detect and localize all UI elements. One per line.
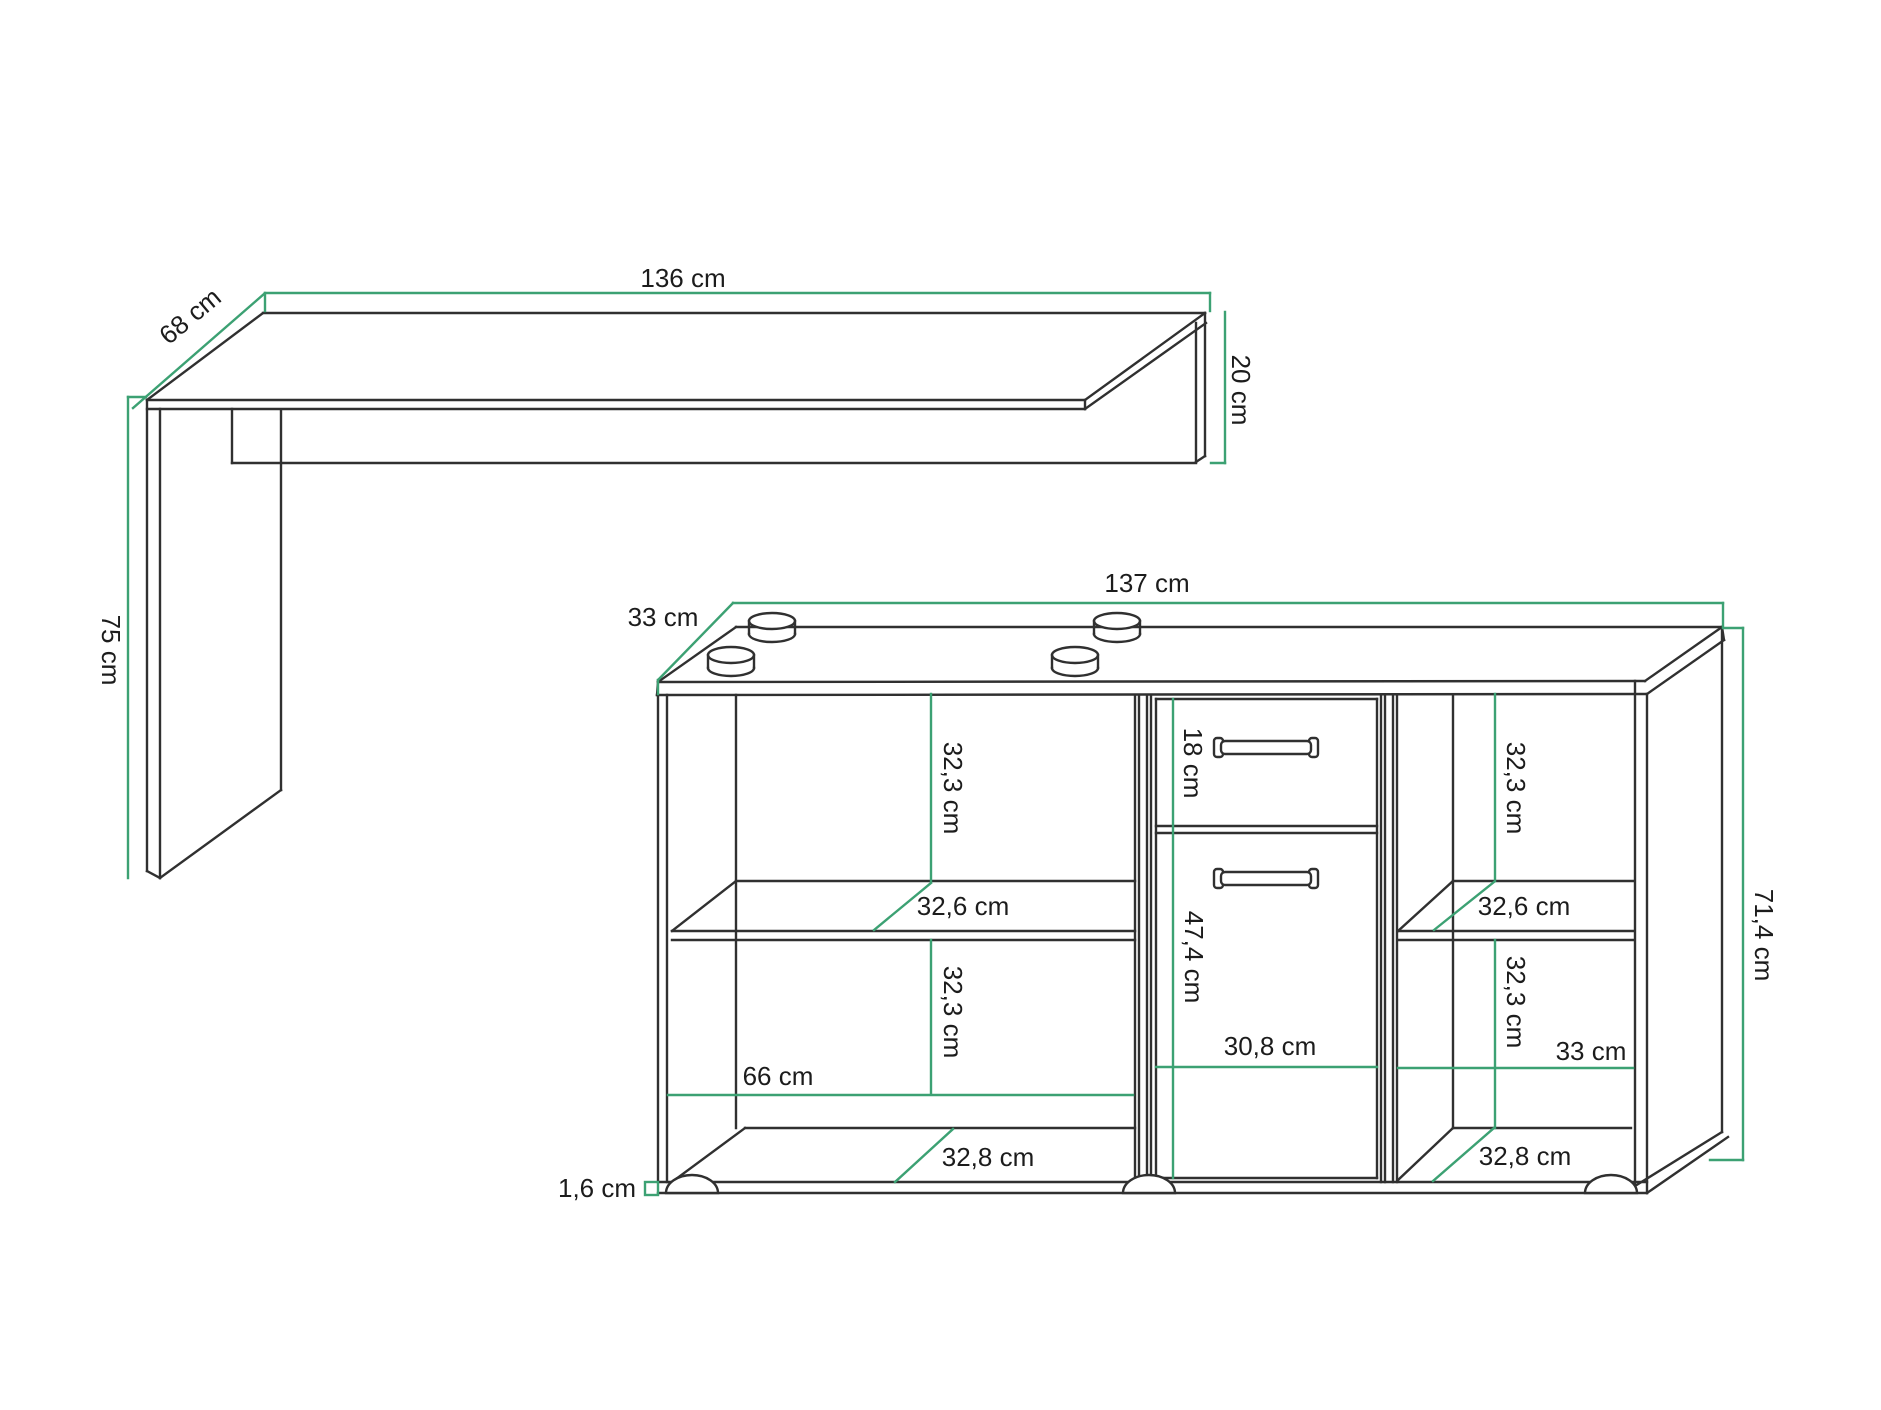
foot-cylinder-front-left: [708, 647, 754, 676]
foot-cylinder-front-right: [1052, 647, 1098, 676]
bottom-thickness-marker: [645, 1182, 658, 1195]
desk-top-right-edge-thickness: [1085, 323, 1206, 409]
cabinet-top-front-edge: [658, 681, 1645, 682]
desk-depth-label: 68 cm: [153, 282, 227, 350]
desk-width-label: 136 cm: [640, 263, 725, 293]
diagram-canvas: 136 cm 68 cm 75 cm 20 cm: [0, 0, 1881, 1410]
desk-panel-height-label: 20 cm: [1226, 355, 1256, 426]
door-height-label: 47,4 cm: [1179, 911, 1209, 1004]
bottom-thickness-label: 1,6 cm: [558, 1173, 636, 1203]
cabinet-height-label: 71,4 cm: [1749, 889, 1779, 982]
door-handle: [1214, 869, 1318, 888]
desk-right-panel-bottom: [1196, 456, 1205, 462]
right-bottom-depth-label: 32,8 cm: [1479, 1141, 1572, 1171]
left-floor-side-edge: [672, 1128, 745, 1182]
cabinet-top-right-edge: [1645, 627, 1722, 681]
cabinet-depth-label: 33 cm: [628, 602, 699, 632]
cabinet-foot-right: [1585, 1175, 1637, 1193]
left-upper-compartment-label: 32,3 cm: [938, 742, 968, 835]
desk-top-right-edge: [1085, 313, 1205, 400]
desk-left-panel-bottom-edge: [160, 790, 281, 878]
foot-cylinder-back-right: [1094, 613, 1140, 642]
right-inner-width-label: 33 cm: [1556, 1036, 1627, 1066]
left-shelf-depth-label: 32,6 cm: [917, 891, 1010, 921]
drawer-handle: [1214, 738, 1318, 757]
right-shelf-side-edge: [1398, 881, 1453, 931]
desk-height-label: 75 cm: [96, 615, 126, 686]
desk-left-panel-front-bottom: [147, 871, 160, 878]
cabinet-foot-left: [666, 1175, 718, 1193]
cabinet-width-label: 137 cm: [1104, 568, 1189, 598]
left-bottom-depth-label: 32,8 cm: [942, 1142, 1035, 1172]
left-shelf-side-edge: [672, 881, 736, 931]
left-inner-width-label: 66 cm: [743, 1061, 814, 1091]
drawer-height-label: 18 cm: [1178, 728, 1208, 799]
furniture-dimension-diagram: 136 cm 68 cm 75 cm 20 cm: [0, 0, 1881, 1410]
desk-outline: [147, 313, 1206, 878]
cabinet-right-panel-bottom-inner: [1647, 1137, 1728, 1193]
right-shelf-depth-label: 32,6 cm: [1478, 891, 1571, 921]
left-lower-compartment-label: 32,3 cm: [938, 966, 968, 1059]
right-upper-compartment-label: 32,3 cm: [1501, 742, 1531, 835]
desk-dimension-lines: [128, 293, 1225, 878]
cabinet-top-right-edge-thickness: [1647, 640, 1724, 694]
middle-inner-width-label: 30,8 cm: [1224, 1031, 1317, 1061]
foot-cylinder-back-left: [749, 613, 795, 642]
right-lower-compartment-label: 32,3 cm: [1501, 956, 1531, 1049]
cabinet-dimension-lines: [645, 603, 1743, 1195]
